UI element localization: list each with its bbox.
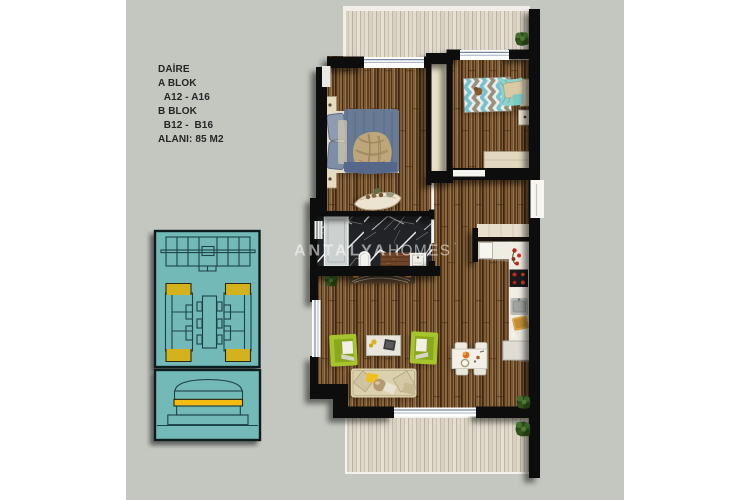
svg-text:’: ’: [454, 241, 456, 251]
svg-text:HOMES: HOMES: [388, 243, 452, 260]
